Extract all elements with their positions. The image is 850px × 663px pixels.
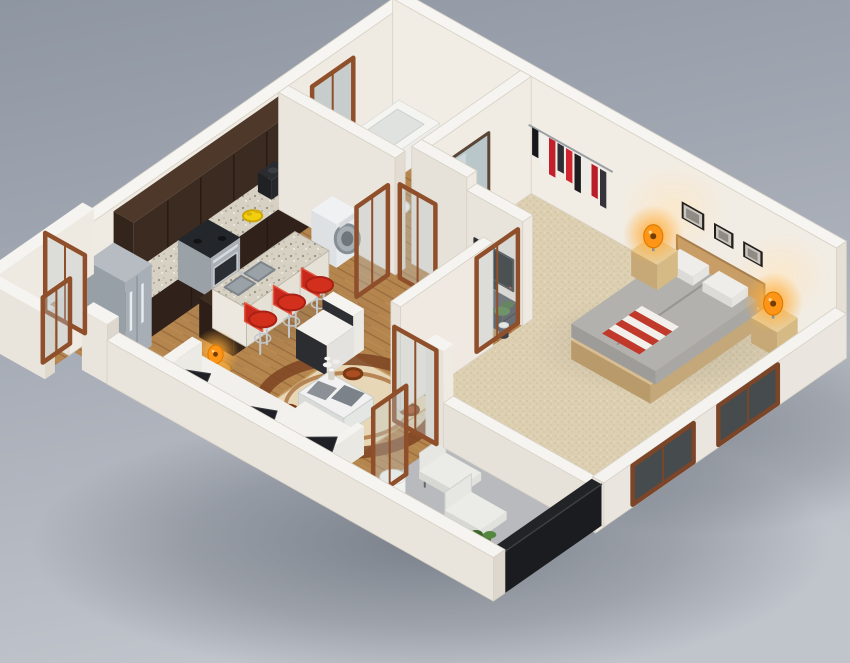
flower-vase (328, 368, 334, 380)
cabinet-seam (233, 154, 234, 202)
island-faucet (239, 271, 244, 274)
bedside-lamp (623, 205, 683, 265)
washer-door-glass (341, 231, 353, 246)
apartment-3d-floorplan-render (0, 0, 850, 663)
stove-burner (218, 236, 226, 241)
cabinet-seam (200, 177, 201, 225)
rug-spot (344, 369, 362, 379)
bedside-lamp (743, 272, 803, 332)
floorplan-scene-canvas (0, 0, 850, 663)
cabinet-seam (167, 200, 168, 248)
fridge-handle (130, 291, 133, 332)
white-flowers (324, 357, 330, 361)
white-flowers (333, 360, 341, 364)
espresso-machine-top (268, 167, 278, 173)
laundry-door-frame (357, 185, 388, 297)
fruit (255, 210, 261, 213)
planter-foliage (484, 531, 497, 538)
stove-burner (193, 239, 201, 244)
fridge-door-seam (137, 276, 138, 354)
white-flowers (323, 362, 332, 367)
fridge-handle (141, 283, 143, 324)
counter-door-seam (267, 218, 268, 254)
fruit (246, 212, 252, 215)
